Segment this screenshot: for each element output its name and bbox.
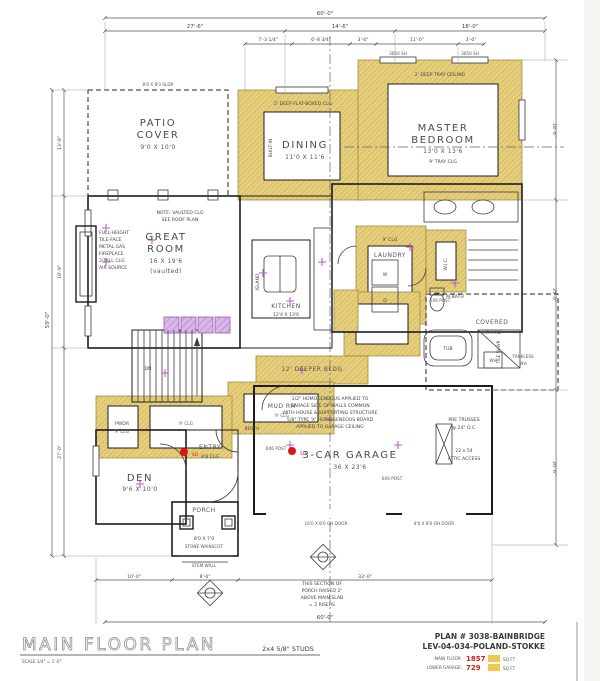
laundry-door-swing	[338, 246, 356, 264]
window	[380, 57, 416, 63]
porch-raised-note: THIS SECTION OF	[301, 581, 342, 587]
dim-label: 6'-8 3/4"	[311, 37, 331, 43]
smoke-detector	[288, 447, 296, 455]
post	[208, 190, 218, 200]
dining-dims: 11'0 X 11'6	[285, 154, 325, 161]
builtin-label: BUILT-IN	[268, 139, 274, 158]
post-label: 6X6 POST	[430, 298, 451, 303]
post-label: 6X6 POST	[266, 446, 287, 451]
fireplace-note-line: FULL-HEIGHT	[99, 230, 129, 236]
title-block: MAIN FLOOR PLAN SCALE 1/4" = 1'-0" 2x4 5…	[20, 622, 577, 681]
great-room-note: NOTE: VAULTED CLG	[156, 210, 204, 216]
dim-label: 13'-9"	[57, 136, 63, 150]
bench-label: BENCH	[245, 426, 260, 431]
kitchen-outline	[240, 196, 332, 348]
stair-treads	[138, 330, 192, 402]
deeper-bldg-label: 12' DEEPER BLDG	[281, 366, 342, 373]
great-room-label: ROOM	[147, 244, 185, 255]
porch-post-inner	[225, 519, 232, 526]
dim-label: 18'-6"	[551, 123, 557, 137]
window	[276, 87, 328, 93]
garage-sep-note: APPLIED TO GARAGE CEILING	[296, 424, 364, 430]
garage-sep-note: 1/2" HOMOGENEOUS APPLIED TO	[292, 396, 369, 402]
area2-unit: SQ FT	[503, 666, 516, 671]
entry-label: ENTRY	[199, 444, 221, 451]
window	[519, 100, 525, 140]
porch-label: PORCH	[192, 507, 215, 514]
island-label: ISLAND	[255, 273, 261, 291]
patio-cover-label: PATIO	[140, 118, 176, 129]
laundry-clg: 9' CLG	[383, 237, 398, 243]
area1-unit: SQ FT	[503, 657, 516, 662]
post	[108, 190, 118, 200]
entry-clg: 9'8 CLG	[201, 454, 219, 460]
dim-label: 33'-0"	[358, 574, 372, 580]
dryer-label: D	[383, 298, 387, 304]
pantry-shelf	[198, 317, 213, 333]
dining-clg-note: 2' DEEP FLAT-BOXED CLG	[274, 101, 332, 107]
great-room-dims: 16 X 19'6	[149, 258, 182, 265]
smoke-detector	[180, 448, 188, 456]
kitchen-dims: 12'4 X 13'6	[273, 312, 299, 318]
fireplace-note: FULL-HEIGHT TILE-FACE METAL GAS FIREPLAC…	[98, 230, 129, 271]
dim-label: 25'-0"	[551, 288, 557, 302]
blueprint-sheet: SD SD 60'-0" 27'-6"	[0, 0, 600, 681]
sink	[434, 200, 456, 214]
plan-number: PLAN # 3038-BAINBRIDGE	[435, 632, 545, 641]
dim-label: 19'-9"	[57, 265, 63, 279]
fireplace-note-line: TILE-FACE	[98, 237, 122, 243]
sink	[472, 200, 494, 214]
wh-label: WH	[489, 358, 496, 363]
oh-door-label: 8'0 X 8'0 OH DOOR	[414, 521, 454, 526]
laundry-label: LAUNDRY	[374, 252, 406, 259]
patio-cover-label: COVER	[137, 130, 180, 141]
kitchen-counter	[314, 228, 332, 330]
dim-label: 7'-3 1/4"	[258, 37, 278, 43]
window-tag: 8'0 X 8'0 SLDR	[143, 82, 174, 87]
great-room-label: GREAT	[145, 232, 186, 243]
covered-patio-outline	[426, 294, 558, 390]
plan-revision: LEV-04-034-POLAND-STOKKE	[423, 642, 545, 651]
master-clg-note: 2' DEEP TRAY CEILING	[415, 72, 466, 78]
oh-door-label: 16'0 X 8'0 OH DOOR	[305, 521, 348, 526]
dim-label: 10'-0"	[127, 574, 141, 580]
detail-marker	[310, 544, 335, 569]
area1-label: MAIN FLOOR:	[434, 656, 462, 661]
master-label: BEDROOM	[411, 135, 474, 146]
wainscot-note: STONE WAINSCOT	[185, 544, 224, 549]
garage-door-opening-2	[402, 509, 466, 518]
post-label: 6X6 POST	[382, 476, 403, 481]
pantry-shelf	[215, 317, 230, 333]
window-tag: 3050 SH	[461, 51, 479, 56]
dim-label: 14'-6"	[332, 24, 349, 30]
stairs-outline	[132, 330, 202, 402]
studs-note: 2x4 5/8" STUDS	[262, 645, 314, 653]
floor-plan-drawing: SD SD 60'-0" 27'-6"	[0, 0, 600, 681]
sd-label: SD	[192, 452, 198, 457]
master-clg: 9' TRAY CLG	[429, 159, 457, 165]
dim-label: 60'-0"	[317, 615, 334, 621]
window	[85, 306, 91, 336]
pantry-shelf	[181, 317, 196, 333]
area2-label: LOWER GARAGE:	[427, 665, 462, 670]
dim-label: 8'-6"	[200, 574, 211, 580]
area2-highlight	[488, 664, 500, 671]
dim-label: 20'-6"	[551, 461, 557, 475]
stairs-label: DN	[145, 366, 152, 372]
hall-wall-band	[334, 290, 358, 332]
wh-note: TANKLESS	[511, 354, 534, 359]
fireplace-note-line: AIR SOURCE	[99, 265, 127, 271]
covered-patio-label: PATIO	[482, 329, 502, 336]
stem-wall-note: STEM WALL	[192, 563, 217, 568]
great-room-note: SEE ROOF PLAN	[162, 217, 199, 223]
dim-label: 3'-0"	[358, 37, 369, 43]
porch-raised-note: ABOVE MAIN SLAB	[301, 595, 344, 601]
garage-sep-note: WITH HOUSE & SUPPORTING STRUCTURE	[282, 410, 377, 416]
dim-label: 27'-6"	[187, 24, 204, 30]
stair-arrow-head	[194, 337, 200, 346]
area2-value: 729	[466, 664, 481, 672]
closet-clg: 9' CLG	[179, 421, 193, 426]
garage-door-opening-1	[266, 509, 386, 518]
sheet-title: MAIN FLOOR PLAN	[22, 635, 216, 655]
garage-sep-note: 5/8" TYPE 'X' HOMOGENEOUS BOARD	[287, 417, 374, 423]
master-dims: 13'0 X 13'6	[423, 148, 463, 155]
patio-cover-outline	[88, 90, 228, 196]
den-label: DEN	[127, 473, 153, 484]
master-label: MASTER	[418, 123, 469, 134]
fireplace-note-line: METAL GAS	[99, 244, 125, 250]
dim-label: 3'-0"	[466, 37, 477, 43]
covered-patio-label: COVERED	[476, 319, 509, 326]
fireplace-inner	[80, 232, 92, 296]
powder-floor	[108, 406, 138, 448]
window	[452, 57, 488, 63]
pantry-shelf	[164, 317, 179, 333]
dim-label: 59'-0"	[45, 312, 51, 329]
dim-label: 60'-0"	[317, 11, 334, 17]
bath2-floor	[356, 304, 408, 344]
fireplace	[76, 226, 96, 302]
powder-clg: 9' CLG	[115, 429, 129, 434]
garage-dims: 36 X 23'6	[333, 464, 366, 471]
dim-label: 18'-0"	[462, 24, 479, 30]
porch-dims: 8'0 X 7'0	[194, 536, 214, 542]
sheet-scale: SCALE 1/4" = 1'-0"	[22, 659, 62, 664]
tub-label: TUB	[442, 346, 452, 352]
patio-dims: 9'0 X 10'0	[140, 144, 175, 151]
page-edge	[584, 0, 600, 681]
porch-raised-note: PORCH RAISED 2"	[302, 588, 343, 594]
shower-label: TILE SHWR	[496, 340, 501, 364]
porch-post	[222, 516, 235, 529]
garage-sep-note: GARAGE SIDE OF WALLS COMMON	[290, 403, 369, 409]
wh-note: WH	[519, 361, 526, 366]
wic-shelves	[468, 240, 518, 280]
truss-note: @ 24" O.C.	[451, 425, 476, 431]
front-door-swing	[208, 472, 238, 502]
washer-label: W	[383, 272, 388, 278]
dim-label: 11'-0"	[410, 37, 424, 43]
area1-highlight	[488, 655, 500, 662]
fireplace-note-line: 2-TALL CLG	[99, 258, 125, 264]
den-dims: 9'6 X 10'0	[122, 486, 157, 493]
wic-label: W.I.C.	[443, 258, 449, 271]
dim-label: 27'-0"	[57, 445, 63, 459]
porch-raised-note: = 2 RISERS	[309, 602, 335, 608]
dining-label: DINING	[282, 140, 328, 151]
powder-label: PWDR	[115, 421, 130, 427]
fireplace-note-line: FIREPLACE	[99, 251, 124, 257]
detail-marker	[197, 580, 222, 605]
truss-note: PRE TRUSSES	[448, 417, 479, 423]
attic-note: 22 x 54	[455, 448, 472, 454]
post	[158, 190, 168, 200]
attic-note: ATTIC ACCESS	[448, 456, 481, 462]
garage-label: 3-CAR GARAGE	[303, 450, 398, 461]
kitchen-label: KITCHEN	[271, 303, 301, 310]
great-room-vault: (vaulted)	[150, 268, 182, 275]
window-tag: 3050 SH	[389, 51, 407, 56]
window	[93, 446, 99, 476]
area1-value: 1857	[466, 655, 486, 663]
